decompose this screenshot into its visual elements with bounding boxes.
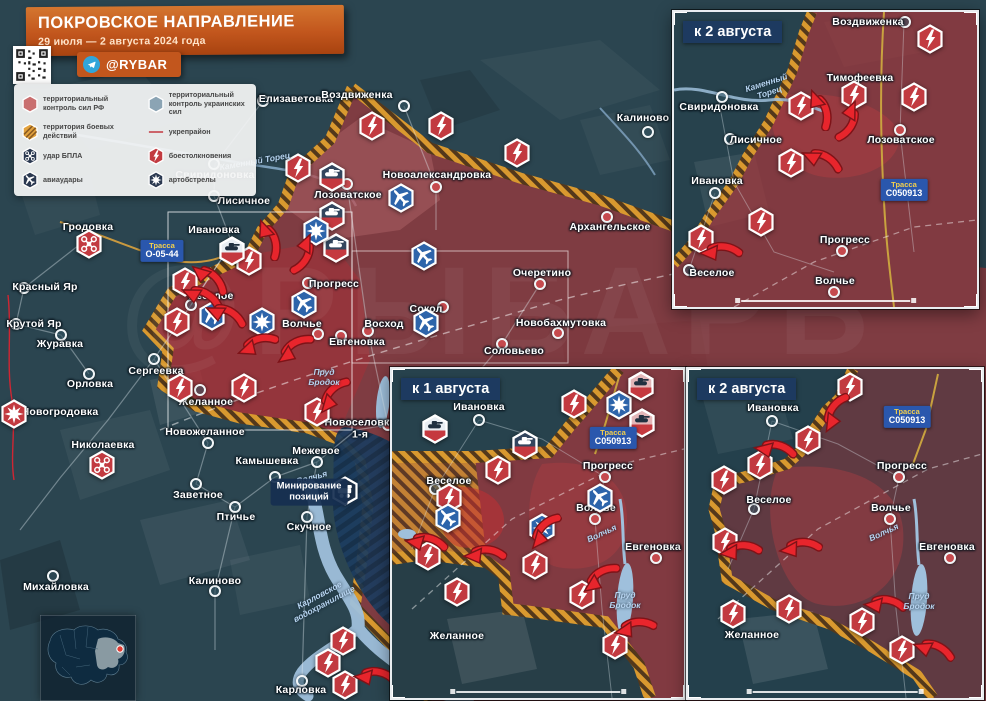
clash-icon	[711, 465, 737, 495]
clash-icon	[359, 111, 385, 141]
legend-item-label: боестолкновения	[169, 152, 232, 161]
clash-icon	[504, 138, 530, 168]
corner-mark	[964, 294, 979, 309]
inset-map-2: к 1 августа ИвановкаВеселоеПрогрессВолчь…	[390, 367, 686, 700]
inset-date-label: к 2 августа	[683, 21, 782, 43]
clash-icon	[917, 24, 943, 54]
scale-bar	[753, 691, 918, 693]
map-date-range: 29 июля — 2 августа 2024 года	[38, 34, 332, 48]
legend-item-label: территория боевых действий	[43, 123, 140, 140]
artillery-red-icon	[1, 399, 27, 429]
inset-date-label: к 1 августа	[401, 378, 500, 400]
ukraine-minimap	[40, 615, 136, 701]
road-label: ТрассаC050913	[884, 406, 931, 428]
corner-mark	[390, 685, 405, 700]
legend-item-label: территориальный контроль украинских сил	[169, 91, 248, 117]
water-label: Каменный Торец	[744, 72, 792, 104]
road-label: ТрассаC050913	[881, 179, 928, 201]
town-label: Новобахмутовка	[516, 318, 606, 330]
town-label: Прогресс	[583, 461, 633, 473]
clash-icon	[167, 373, 193, 403]
town-label: Прогресс	[820, 235, 870, 247]
corner-mark	[964, 10, 979, 25]
town-label: Калиново	[617, 113, 670, 125]
town-label: Желанное	[430, 631, 484, 643]
clash-icon	[776, 594, 802, 624]
town-label: Новожеланное	[165, 427, 245, 439]
advance-arrow	[459, 536, 509, 579]
town-label: Журавка	[37, 339, 83, 351]
water-label: Карловское водохранилище	[287, 575, 356, 624]
town-label: Ивановка	[453, 402, 505, 414]
town-label: Веселое	[746, 495, 791, 507]
telegram-icon	[83, 56, 100, 73]
legend-item-label: артобстрелы	[169, 176, 216, 185]
town-label: Ивановка	[747, 403, 799, 415]
town-label: Воздвиженка	[832, 17, 903, 29]
legend-item: укрепрайон	[148, 123, 248, 141]
town-label: Новоалександровка	[383, 170, 492, 182]
airstrike-icon	[435, 503, 461, 533]
airstrike-icon	[388, 183, 414, 213]
channel-name: @RYBAR	[106, 57, 167, 72]
water-label: Пруд Бродок	[903, 592, 934, 612]
ua-control-icon	[148, 95, 164, 113]
town-label: Орловка	[67, 379, 113, 391]
legend-item-label: авиаудары	[43, 176, 83, 185]
town-label: Соловьево	[484, 346, 544, 358]
legend-item: артобстрелы	[148, 171, 248, 189]
town-dot	[430, 181, 442, 193]
town-dot	[473, 414, 485, 426]
town-label: Волчье	[815, 276, 855, 288]
corner-mark	[671, 367, 686, 382]
clash-icon	[444, 577, 470, 607]
town-label: Заветное	[173, 490, 223, 502]
water-label: Волчья	[586, 523, 619, 545]
inset-3-markers: ИвановкаВеселоеПрогрессВолчьеЖеланноеЕвг…	[688, 369, 982, 698]
town-label: Карловка	[276, 685, 327, 697]
scale-bar	[741, 300, 911, 302]
legend-item: удар БПЛА	[22, 147, 140, 165]
town-label: Волчье	[871, 503, 911, 515]
fortline-icon	[148, 123, 164, 141]
drone-dark-icon	[22, 147, 38, 165]
advance-arrow	[776, 531, 825, 572]
legend-item: территория боевых действий	[22, 123, 140, 141]
channel-banner[interactable]: @RYBAR	[77, 52, 181, 77]
drone-red-icon	[89, 450, 115, 480]
legend-item: авиаудары	[22, 171, 140, 189]
water-label: Пруд Бродок	[609, 591, 640, 611]
clash-icon	[148, 147, 164, 165]
town-label: Калиново	[189, 576, 242, 588]
legend-item: территориальный контроль украинских сил	[148, 91, 248, 117]
clash-icon	[428, 111, 454, 141]
town-label: Евгеновка	[329, 337, 385, 349]
airstrike-icon	[411, 241, 437, 271]
corner-mark	[686, 367, 701, 382]
tank-dark-icon	[512, 430, 538, 460]
town-label: Лисичное	[730, 135, 782, 147]
legend-item: боестолкновения	[148, 147, 248, 165]
legend-panel: территориальный контроль сил РФтерритори…	[14, 84, 256, 196]
tank-white-icon	[219, 236, 245, 266]
drone-red-icon	[76, 229, 102, 259]
tank-white-icon	[422, 414, 448, 444]
artillery-dark-icon	[148, 171, 164, 189]
rf-control-icon	[22, 95, 38, 113]
road-label: ТрассаC050913	[590, 427, 637, 449]
town-label: Новогродовка	[22, 407, 99, 419]
town-dot	[194, 384, 206, 396]
location-marker	[117, 646, 123, 652]
scale-bar	[456, 691, 620, 693]
town-dot	[709, 187, 721, 199]
town-label: Скучное	[287, 522, 332, 534]
airstrike-icon	[291, 289, 317, 319]
town-label: Очеретино	[513, 268, 571, 280]
tank-pink-icon	[628, 371, 654, 401]
combat-zone-icon	[22, 123, 38, 141]
town-label: Птичье	[217, 512, 256, 524]
airstrike-dark-icon	[22, 171, 38, 189]
water-label: Волчья	[868, 522, 901, 544]
inset-date-label: к 2 августа	[697, 378, 796, 400]
town-label: Свиридоновка	[679, 102, 758, 114]
legend-item: территориальный контроль сил РФ	[22, 91, 140, 117]
clash-icon	[720, 599, 746, 629]
town-label: Архангельское	[569, 222, 650, 234]
inset-map-1: к 2 августа ВоздвиженкаТимофеевкаСвиридо…	[672, 10, 979, 309]
town-label: Лозоватское	[867, 135, 935, 147]
town-label: Лисичное	[218, 196, 270, 208]
town-label: Воздвиженка	[321, 90, 392, 102]
town-label: Крутой Яр	[6, 319, 61, 331]
town-label: Восход	[364, 319, 403, 331]
town-label: Михайловка	[23, 582, 89, 594]
map-canvas: @РЫБАРЬ ЕлизаветовкаВоздвиженкаКалиновоС…	[0, 0, 986, 701]
corner-mark	[672, 294, 687, 309]
clash-icon	[231, 373, 257, 403]
town-label: Межевое	[292, 446, 340, 458]
map-title: ПОКРОВСКОЕ НАПРАВЛЕНИЕ	[38, 12, 332, 33]
corner-mark	[686, 685, 701, 700]
town-dot	[766, 415, 778, 427]
tank-dark-icon	[319, 162, 345, 192]
clash-icon	[485, 455, 511, 485]
town-label: Евгеновка	[625, 542, 681, 554]
town-label: Новоселовка 1-я	[325, 417, 396, 441]
town-label: Волчье	[282, 319, 322, 331]
airstrike-icon	[587, 483, 613, 513]
qr-code	[13, 46, 51, 84]
town-label: Камышевка	[235, 456, 298, 468]
legend-item-label: удар БПЛА	[43, 152, 82, 161]
corner-mark	[969, 685, 984, 700]
inset-map-3: к 2 августа ИвановкаВеселоеПрогрессВолчь…	[686, 367, 984, 700]
clash-icon	[561, 389, 587, 419]
clash-icon	[748, 207, 774, 237]
town-label: Красный Яр	[12, 282, 77, 294]
road-label: ТрассаО-05-44	[140, 240, 183, 262]
title-banner: ПОКРОВСКОЕ НАПРАВЛЕНИЕ 29 июля — 2 авгус…	[26, 5, 344, 56]
clash-icon	[164, 307, 190, 337]
town-label: Прогресс	[877, 461, 927, 473]
airstrike-icon	[413, 308, 439, 338]
corner-mark	[969, 367, 984, 382]
corner-mark	[390, 367, 405, 382]
town-dot	[398, 100, 410, 112]
corner-mark	[672, 10, 687, 25]
note-label: Минирование позиций	[271, 479, 348, 506]
town-dot	[148, 353, 160, 365]
advance-arrow	[794, 137, 846, 189]
town-label: Желанное	[725, 630, 779, 642]
inset-2-markers: ИвановкаВеселоеПрогрессВолчьеЖеланноеЕвг…	[392, 369, 684, 698]
town-dot	[642, 126, 654, 138]
town-label: Евгеновка	[919, 542, 975, 554]
water-label: Пруд Бродок	[308, 368, 339, 388]
advance-arrow	[716, 534, 765, 575]
clash-icon	[901, 82, 927, 112]
town-label: Ивановка	[691, 176, 743, 188]
legend-item-label: территориальный контроль сил РФ	[43, 95, 140, 112]
corner-mark	[671, 685, 686, 700]
inset-1-markers: ВоздвиженкаТимофеевкаСвиридоновкаЛисично…	[674, 12, 977, 307]
legend-item-label: укрепрайон	[169, 128, 211, 137]
